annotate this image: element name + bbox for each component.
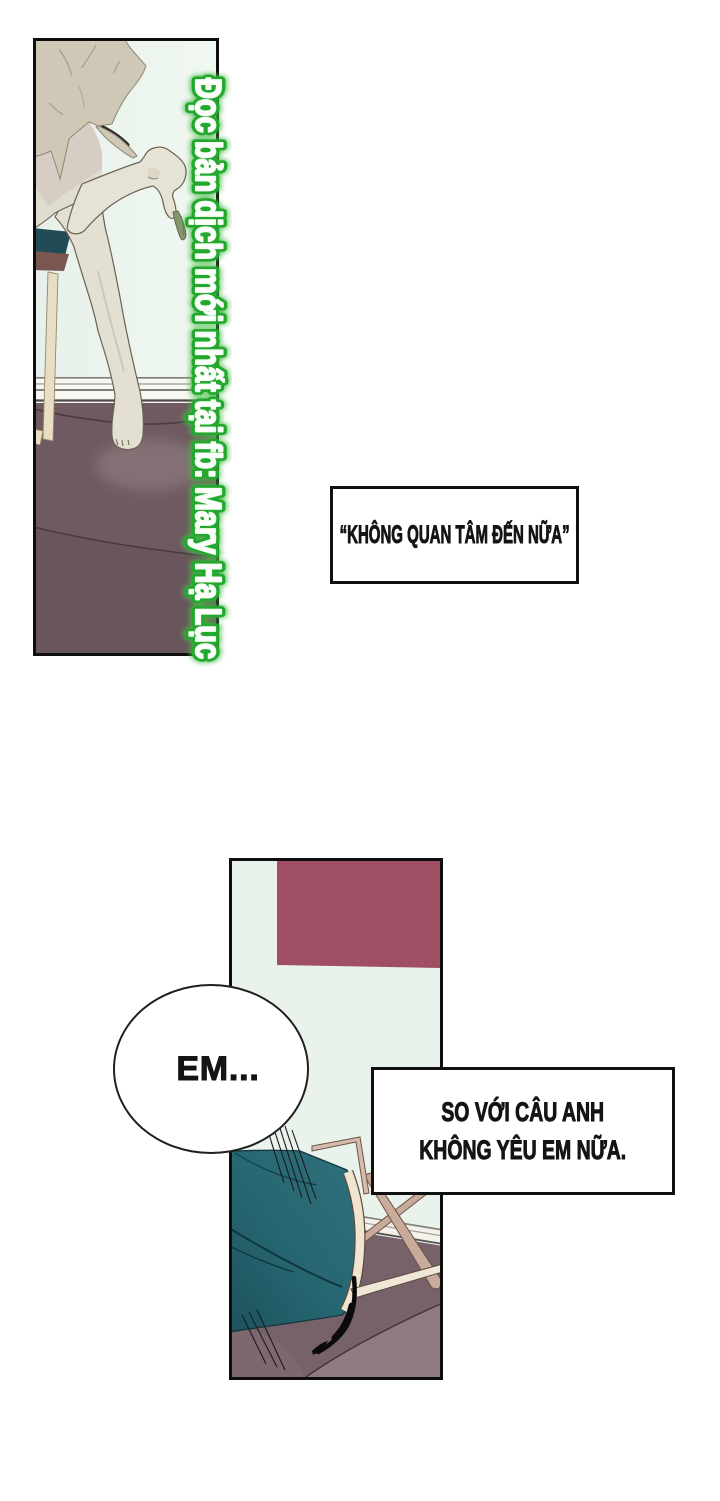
svg-text:Đọc bản dịch mới nhất tại fb:: Đọc bản dịch mới nhất tại fb: Mary Hạ Lụ… xyxy=(188,78,229,659)
